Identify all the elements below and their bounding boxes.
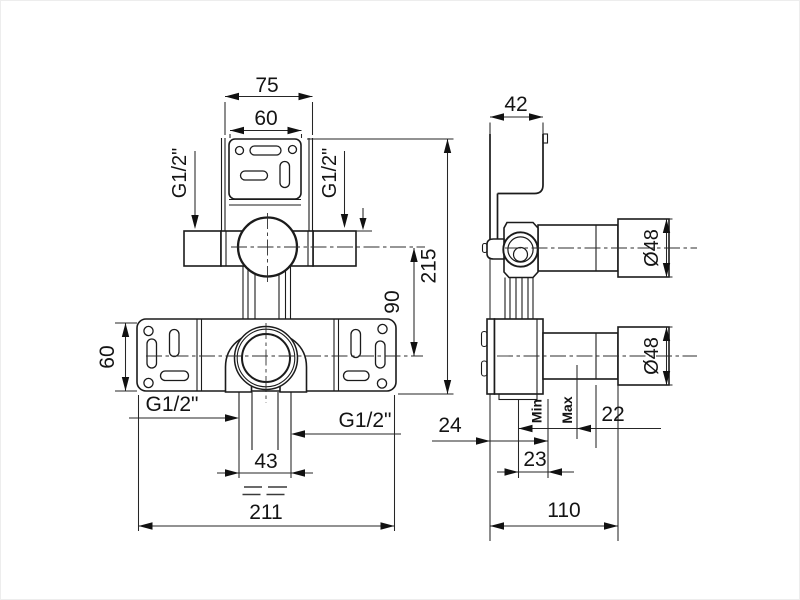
- arrowhead: [604, 522, 618, 529]
- dim-front-total-height: 215: [418, 248, 441, 283]
- dim-front-total-width: 211: [249, 501, 282, 524]
- screw-hole: [378, 324, 387, 333]
- arrowhead: [230, 127, 244, 134]
- slot-hole: [250, 146, 281, 155]
- arrowhead: [341, 214, 348, 228]
- min-wall-label: Min: [529, 399, 545, 423]
- front-upper-valve: [184, 218, 356, 335]
- thread-label-bottom-left: G1/2": [146, 393, 199, 416]
- dim-front-center-distance: 90: [381, 290, 404, 313]
- arrowhead: [291, 469, 305, 476]
- dim-side-depth-22: 22: [601, 403, 624, 426]
- body-foot: [499, 394, 537, 400]
- arrowhead: [381, 522, 395, 529]
- side-view: [482, 123, 698, 542]
- screw-boss: [482, 361, 488, 376]
- thread-label-top-left: G1/2": [169, 148, 191, 198]
- screw-hole: [236, 147, 244, 155]
- arrowhead: [505, 468, 519, 475]
- technical-drawing: 75 60 G1/2" G1/2" 215 90 60: [1, 1, 800, 600]
- right-port-stub: [313, 231, 356, 266]
- arrowhead: [490, 522, 504, 529]
- dim-side-upper-diameter: Ø48: [641, 229, 663, 267]
- screw-hole: [144, 326, 153, 335]
- arrowhead: [225, 414, 239, 421]
- slot-hole: [376, 341, 386, 368]
- upper-valve-tab: [487, 239, 504, 259]
- dim-front-bracket-width: 60: [254, 107, 277, 130]
- arrowhead: [225, 93, 239, 100]
- dim-front-top-width: 75: [255, 74, 278, 97]
- max-wall-label: Max: [559, 396, 575, 423]
- arrowhead: [299, 93, 313, 100]
- slot-hole: [170, 330, 180, 357]
- bracket-top-arm: [498, 134, 544, 194]
- thread-label-top-right: G1/2": [319, 148, 341, 198]
- arrowhead: [139, 522, 153, 529]
- arrowhead: [410, 342, 417, 356]
- slot-hole: [280, 162, 290, 188]
- dim-front-plate-height: 60: [96, 345, 119, 368]
- dim-42-lines: [490, 117, 543, 134]
- slot-hole: [161, 371, 189, 381]
- arrowhead: [444, 380, 451, 394]
- left-port-stub: [184, 231, 221, 266]
- dim-side-depth-23: 23: [523, 448, 546, 471]
- break-symbol: [243, 487, 288, 495]
- arrowhead: [288, 127, 302, 134]
- slot-hole: [147, 339, 157, 368]
- arrowhead: [360, 218, 367, 230]
- slot-hole: [351, 330, 361, 358]
- riser-pipe-side: [505, 278, 533, 320]
- plate-bottom-band: [229, 200, 301, 206]
- dim-side-depth-front: 24: [438, 414, 462, 437]
- arrowhead: [122, 377, 129, 391]
- dim-side-bracket-depth: 42: [504, 93, 527, 116]
- arrowhead: [519, 425, 533, 432]
- arrowhead: [191, 215, 198, 229]
- bottom-outlets: [239, 392, 291, 450]
- arrowhead: [444, 139, 451, 153]
- lower-body-block: [495, 319, 544, 394]
- dim-side-lower-diameter: Ø48: [641, 337, 663, 375]
- screw-hole: [144, 378, 153, 387]
- screw-hole: [377, 379, 386, 388]
- arrowhead: [291, 430, 305, 437]
- arrowhead: [577, 425, 591, 432]
- slot-hole: [344, 371, 370, 381]
- arrowhead: [476, 437, 490, 444]
- arrowhead: [490, 113, 504, 120]
- drawing-canvas: 75 60 G1/2" G1/2" 215 90 60: [0, 0, 800, 600]
- screw-hole: [289, 146, 297, 154]
- arrowhead: [548, 468, 562, 475]
- dimension-annotations: 75 60 G1/2" G1/2" 215 90 60: [96, 74, 673, 531]
- arrowhead: [122, 323, 129, 337]
- screw-boss: [482, 332, 488, 347]
- slot-hole: [241, 171, 268, 180]
- bar-edge-strip: [487, 319, 495, 394]
- arrowhead: [529, 113, 543, 120]
- arrowhead: [534, 437, 548, 444]
- thread-label-bottom-right: G1/2": [339, 409, 392, 432]
- dim-front-outlet-spacing: 43: [254, 450, 277, 473]
- arrowhead: [225, 469, 239, 476]
- dim-side-total-depth: 110: [547, 499, 580, 522]
